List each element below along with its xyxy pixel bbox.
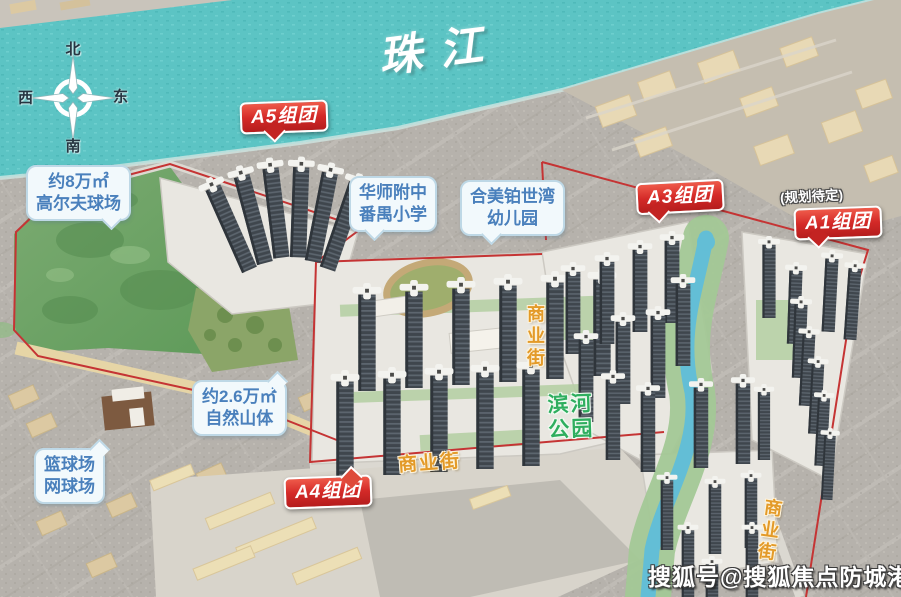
callout-school-line1: 华师附中 <box>359 182 427 204</box>
compass-west-label: 西 <box>18 91 33 106</box>
zone-label-a4: A4组团 <box>283 474 372 509</box>
compass-east-label: 东 <box>113 89 128 104</box>
park-label-line1: 滨河 <box>547 391 594 418</box>
callout-hill-line2: 自然山体 <box>202 408 277 430</box>
zone-label-a3: A3组团 <box>635 179 725 215</box>
callout-primary-school: 华师附中 番禺小学 <box>349 176 437 232</box>
callout-courts-line2: 网球场 <box>44 476 95 498</box>
park-label-line2: 公园 <box>548 416 595 443</box>
callout-hill-line1: 约2.6万㎡ <box>202 386 277 408</box>
street-label-commercial-a4: 商业街 <box>397 446 462 477</box>
callout-natural-hill: 约2.6万㎡ 自然山体 <box>192 380 287 436</box>
zone-label-a5-text: A5组团 <box>251 105 318 128</box>
site-plan-map: 北 南 东 西 珠江 A5组团 A3组团 (规划待定) A1组团 A4组团 约8… <box>0 0 901 597</box>
watermark-text: 搜狐号@搜狐焦点防城港站 <box>648 558 901 592</box>
callout-golf-line1: 约8万㎡ <box>36 171 121 193</box>
callout-kindergarten-line2: 幼儿园 <box>470 208 555 230</box>
callout-courts-line1: 篮球场 <box>44 454 95 476</box>
callout-kindergarten: 合美铂世湾 幼儿园 <box>460 180 565 236</box>
compass-south-label: 南 <box>65 139 80 154</box>
zone-label-a5: A5组团 <box>239 99 328 134</box>
callout-school-line2: 番禺小学 <box>359 204 427 226</box>
street-label-commercial-central: 商业街 <box>522 304 548 370</box>
callout-golf-course: 约8万㎡ 高尔夫球场 <box>26 165 131 221</box>
park-label-riverside: 滨河 公园 <box>547 391 595 443</box>
compass-rose: 北 南 东 西 <box>18 42 128 154</box>
zone-label-a1: A1组团 <box>793 205 882 240</box>
callout-kindergarten-line1: 合美铂世湾 <box>470 186 555 208</box>
callout-sports-courts: 篮球场 网球场 <box>34 448 105 504</box>
zone-a1-note: (规划待定) <box>780 183 844 206</box>
compass-north-label: 北 <box>65 42 80 57</box>
